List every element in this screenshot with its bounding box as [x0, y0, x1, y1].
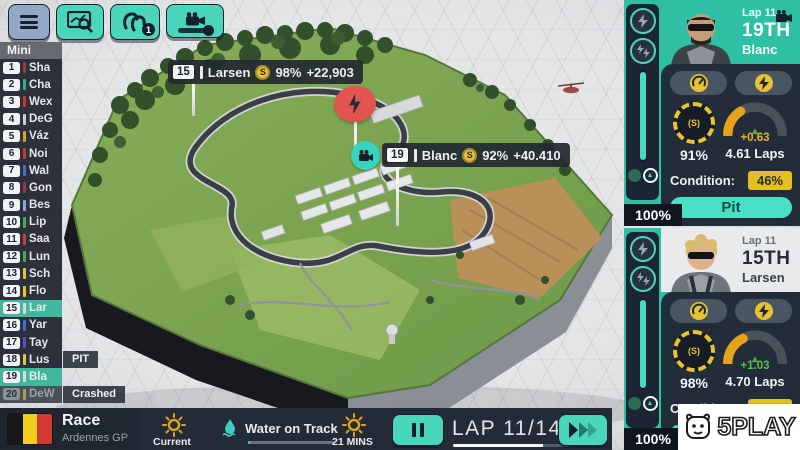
mini-standings: Mini 1Sha 2Cha 3Wex 4DeG 5Váz 6Noi 7Wal …	[0, 42, 62, 403]
double-lightning-icon	[636, 272, 650, 286]
engine-mode-button[interactable]	[670, 71, 727, 95]
menu-button[interactable]	[8, 4, 50, 40]
position-badge: 13	[3, 268, 20, 280]
driver-code: Sha	[29, 62, 50, 74]
race-position: 15TH	[742, 248, 790, 270]
fuel-laps: 4.70 Laps	[725, 374, 784, 389]
pace-percent: 100%	[624, 204, 682, 226]
standings-row[interactable]: 3Wex	[0, 93, 62, 110]
position-badge: 12	[3, 251, 20, 263]
team-color-bar	[23, 148, 26, 159]
standings-row[interactable]: 7Wal	[0, 162, 62, 179]
standings-row[interactable]: 8Gon	[0, 179, 62, 196]
driver-code: Flo	[29, 285, 46, 297]
tyre-compound-icon: S	[255, 65, 270, 80]
sun-icon	[162, 413, 186, 437]
lap-label: Lap 11	[742, 7, 776, 19]
camera-follow-marker[interactable]	[351, 141, 380, 170]
camera-zoom-slider[interactable]	[178, 28, 212, 33]
driver-header: Lap 11 19TH Blanc	[661, 0, 800, 64]
driver-panel-blanc: Lap 11 19TH Blanc	[624, 0, 800, 226]
driver-name: Larsen	[742, 270, 785, 285]
team-color-bar	[23, 79, 26, 90]
team-color-bar	[23, 182, 26, 193]
radio-count-badge: 1	[142, 23, 155, 36]
standings-row[interactable]: 6Noi	[0, 145, 62, 162]
driver-code: DeW	[29, 388, 55, 400]
tyre-compound-icon: (S)	[673, 102, 715, 144]
fuel-status: +1.03 4.70 Laps	[718, 330, 792, 389]
lap-counter: LAP 11/14	[452, 417, 562, 441]
driver-code: Gon	[29, 182, 52, 194]
driver-header: Lap 11 15TH Larsen	[661, 228, 800, 292]
slider-increase-button[interactable]: ▲	[643, 168, 658, 183]
sun-icon	[342, 413, 366, 437]
fast-forward-icon	[569, 422, 597, 438]
pace-percent: 100%	[624, 428, 682, 450]
driver-code: Tay	[29, 337, 48, 349]
lightning-icon	[637, 14, 649, 28]
driver-code: Sch	[29, 268, 50, 280]
ers-charge-button[interactable]	[630, 38, 656, 64]
pit-status-chip: PIT	[63, 351, 98, 368]
standings-row[interactable]: 13Sch	[0, 265, 62, 282]
fuel-delta: +0.63	[740, 132, 769, 144]
standings-row-crashed[interactable]: 20DeWCrashed	[0, 386, 62, 403]
driver-code: Yar	[29, 319, 47, 331]
race-control-bar: Race Ardennes GP Current Water on Track	[0, 408, 612, 450]
position-badge: 4	[3, 113, 20, 125]
fast-forward-button[interactable]	[558, 414, 608, 446]
driver-code: Wal	[29, 165, 49, 177]
pit-button[interactable]: Pit	[670, 197, 792, 218]
tyre-status: (S) 98%	[670, 330, 718, 391]
team-color-bar	[23, 337, 26, 348]
video-camera-icon	[184, 12, 206, 26]
position-badge: 3	[3, 96, 20, 108]
team-color-bar	[23, 131, 26, 142]
engine-mode-button[interactable]	[670, 299, 727, 323]
position-badge: 2	[3, 79, 20, 91]
gap-time: +22,903	[306, 65, 353, 80]
event-name: Ardennes GP	[62, 432, 128, 444]
team-color-bar	[23, 114, 26, 125]
team-color-bar	[23, 62, 26, 73]
team-color-bar	[23, 200, 26, 211]
standings-row[interactable]: 10Lip	[0, 214, 62, 231]
team-color-bar	[23, 234, 26, 245]
position-badge: 9	[3, 199, 20, 211]
fuel-laps: 4.61 Laps	[725, 146, 784, 161]
gap-time: +40.410	[513, 148, 560, 163]
team-color-bar	[23, 96, 26, 107]
double-lightning-icon	[636, 44, 650, 58]
water-on-track: Water on Track	[222, 418, 338, 438]
team-color-bar	[23, 251, 26, 262]
tyre-status: (S) 91%	[670, 102, 718, 163]
team-color-bar	[23, 320, 26, 331]
standings-row[interactable]: 11Saa	[0, 231, 62, 248]
driver-code: Bes	[29, 199, 50, 211]
driver-code: Lip	[29, 216, 46, 228]
position-badge: 10	[3, 216, 20, 228]
belgium-flag	[8, 414, 52, 444]
standings-row[interactable]: 14Flo	[0, 282, 62, 299]
position-badge: 20	[3, 388, 20, 400]
divider	[200, 66, 203, 79]
lightning-icon	[637, 242, 649, 256]
lightning-icon	[754, 73, 774, 93]
driver-code: Bla	[29, 371, 47, 383]
position-badge: 11	[3, 233, 20, 245]
driver-code: Lus	[29, 354, 49, 366]
camera-mode-button[interactable]	[166, 4, 224, 38]
team-color-bar	[23, 371, 26, 382]
pace-slider[interactable]	[637, 298, 649, 390]
position-badge: 18	[3, 354, 20, 366]
tyre-wear: 92%	[482, 148, 508, 163]
position-badge: 7	[3, 165, 20, 177]
driver-name: Larsen	[208, 65, 251, 80]
crashed-status-chip: Crashed	[63, 386, 125, 403]
standings-row[interactable]: 18LusPIT	[0, 351, 62, 368]
driver-code: Lun	[29, 251, 50, 263]
driver-code: Cha	[29, 79, 51, 91]
tyre-compound-icon: S	[462, 148, 477, 163]
water-drop-icon	[222, 418, 238, 438]
ers-boost-button[interactable]	[630, 236, 656, 262]
driver-code: Noi	[29, 148, 48, 160]
position-badge: 15	[172, 64, 195, 80]
marker-pole	[192, 82, 195, 116]
standings-row[interactable]: 17Tay	[0, 334, 62, 351]
video-camera-icon	[775, 10, 793, 23]
stats-button[interactable]	[56, 4, 104, 40]
session-title: Race	[62, 412, 100, 430]
driver-name: Blanc	[422, 148, 457, 163]
weather-now-label: Current	[153, 436, 191, 448]
water-label: Water on Track	[245, 421, 338, 436]
drive-style-strip: ▲	[626, 232, 659, 428]
position-badge: 5	[3, 130, 20, 142]
team-color-bar	[23, 286, 26, 297]
position-badge: 1	[3, 62, 20, 74]
driver-code: Lar	[29, 302, 47, 314]
ers-mode-button[interactable]	[735, 299, 792, 323]
team-color-bar	[23, 354, 26, 365]
fuel-delta: +1.03	[740, 360, 769, 372]
position-badge: 8	[3, 182, 20, 194]
lightning-icon	[346, 93, 364, 115]
chart-magnifier-icon	[67, 11, 93, 33]
ers-charge-button[interactable]	[630, 266, 656, 292]
pause-button[interactable]	[392, 414, 444, 446]
standings-row[interactable]: 5Váz	[0, 128, 62, 145]
slider-dot	[628, 397, 641, 410]
driver-code: DeG	[29, 113, 53, 125]
marker-pole	[396, 166, 399, 226]
5play-logo-icon	[682, 411, 714, 443]
helicopter	[558, 83, 584, 93]
fuel-gauge	[718, 102, 792, 136]
watermark-text: 5PLAY	[717, 413, 795, 442]
lap-label: Lap 11	[742, 235, 776, 247]
drive-style-strip: ▲	[626, 4, 659, 200]
divider	[414, 149, 417, 162]
hamburger-icon	[20, 15, 38, 29]
standings-row[interactable]: 4DeG	[0, 111, 62, 128]
team-color-bar	[23, 268, 26, 279]
team-color-bar	[23, 303, 26, 314]
weather-eta-label: 21 MINS	[332, 436, 373, 448]
position-badge: 17	[3, 337, 20, 349]
driver-controls: (S) 91% +0.63 4.61 Laps Condition: 46%	[661, 64, 800, 226]
team-color-bar	[23, 165, 26, 176]
standings-row[interactable]: 2Cha	[0, 76, 62, 93]
lightning-icon	[754, 301, 774, 321]
gauge-icon	[689, 301, 709, 321]
driver-name: Blanc	[742, 42, 777, 57]
tyre-compound-icon: (S)	[673, 330, 715, 372]
fuel-gauge	[718, 330, 792, 364]
track-marker-blanc[interactable]: 19 Blanc S 92% +40.410	[382, 143, 570, 167]
standings-row[interactable]: 12Lun	[0, 248, 62, 265]
condition-value: 46%	[748, 171, 792, 190]
slider-dot	[628, 169, 641, 182]
lap-progress-bar	[453, 444, 569, 447]
driver-portrait	[661, 2, 741, 66]
tyre-wear-value: 91%	[680, 147, 708, 163]
standings-row[interactable]: 1Sha	[0, 59, 62, 76]
driver-code: Saa	[29, 233, 49, 245]
standings-row-selected[interactable]: 15Lar	[0, 300, 62, 317]
team-radio-button[interactable]: 1	[110, 4, 160, 40]
position-badge: 19	[386, 147, 409, 163]
driver-portrait	[661, 230, 741, 294]
standings-row[interactable]: 9Bes	[0, 197, 62, 214]
water-level-bar	[248, 441, 334, 444]
slider-increase-button[interactable]: ▲	[643, 396, 658, 411]
pace-slider[interactable]	[637, 70, 649, 162]
track-marker-larsen[interactable]: 15 Larsen S 98% +22,903	[168, 60, 363, 84]
condition-label: Condition:	[670, 173, 735, 188]
standings-header: Mini	[0, 42, 62, 59]
tyre-wear: 98%	[275, 65, 301, 80]
fuel-status: +0.63 4.61 Laps	[718, 102, 792, 161]
tyre-wear-value: 98%	[680, 375, 708, 391]
team-color-bar	[23, 389, 26, 400]
position-badge: 14	[3, 285, 20, 297]
5play-watermark: 5PLAY	[678, 404, 800, 450]
video-camera-icon	[358, 150, 374, 162]
position-badge: 15	[3, 302, 20, 314]
position-badge: 16	[3, 319, 20, 331]
ers-boost-button[interactable]	[630, 8, 656, 34]
game-screen: 15 Larsen S 98% +22,903 19 Blanc S 92% +…	[0, 0, 800, 450]
position-badge: 19	[3, 371, 20, 383]
driver-code: Váz	[29, 130, 49, 142]
standings-row-selected[interactable]: 19Bla	[0, 368, 62, 385]
race-position: 19TH	[742, 20, 790, 42]
team-color-bar	[23, 217, 26, 228]
ers-mode-button[interactable]	[735, 71, 792, 95]
position-badge: 6	[3, 148, 20, 160]
standings-row[interactable]: 16Yar	[0, 317, 62, 334]
gauge-icon	[689, 73, 709, 93]
driver-code: Wex	[29, 96, 52, 108]
